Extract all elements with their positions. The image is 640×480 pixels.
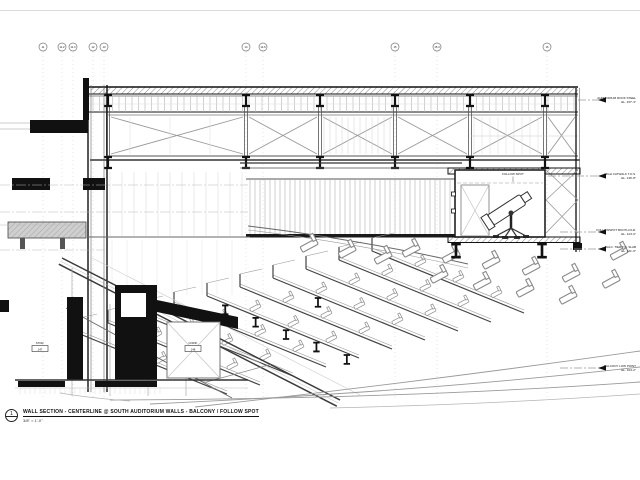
wall-section-drawing: 1111.211.412131414.61515.316 FOLLOW SPOT… [0, 0, 640, 480]
svg-text:15.3: 15.3 [434, 45, 440, 49]
svg-text:15: 15 [394, 45, 397, 49]
svg-text:148: 148 [191, 347, 196, 351]
title-block: 1 WALL SECTION - CENTERLINE @ SOUTH AUDI… [5, 409, 259, 423]
svg-text:CORR.: CORR. [188, 341, 197, 345]
svg-text:16: 16 [546, 45, 549, 49]
drawing-scale: 3/8" = 1'-0" [23, 418, 259, 423]
svg-text:11.4: 11.4 [70, 45, 76, 49]
left-wall-section [0, 78, 107, 392]
svg-text:147: 147 [38, 347, 43, 351]
svg-text:EL. 157'-4": EL. 157'-4" [621, 100, 636, 104]
drawing-sheet: 1111.211.412131414.61515.316 FOLLOW SPOT… [0, 0, 640, 480]
svg-text:EL. 124'-0": EL. 124'-0" [621, 232, 636, 236]
svg-text:14: 14 [245, 45, 248, 49]
drawing-title: WALL SECTION - CENTERLINE @ SOUTH AUDITO… [23, 409, 259, 417]
detail-number-bubble: 1 [5, 409, 18, 422]
lower-left-walls: STOR.147CORR.148 [15, 285, 248, 394]
roof-assembly [83, 78, 578, 120]
elevation-annotations: AUDITORIUM ROOF STEELEL. 157'-4"HIGH CAT… [548, 96, 636, 372]
svg-text:EL. 121'-6": EL. 121'-6" [621, 249, 636, 253]
detail-number: 1 [10, 411, 13, 417]
svg-text:12: 12 [92, 45, 95, 49]
svg-text:EL. 104'-2": EL. 104'-2" [621, 368, 636, 372]
followspot-booth: FOLLOW SPOT [448, 168, 580, 257]
svg-text:EL. 136'-8": EL. 136'-8" [621, 176, 636, 180]
svg-text:STOR.: STOR. [36, 341, 45, 345]
svg-text:14.6: 14.6 [260, 45, 266, 49]
svg-text:13: 13 [103, 45, 106, 49]
svg-text:11: 11 [42, 45, 45, 49]
svg-text:11.2: 11.2 [59, 45, 65, 49]
followspot-label: FOLLOW SPOT [502, 172, 524, 176]
